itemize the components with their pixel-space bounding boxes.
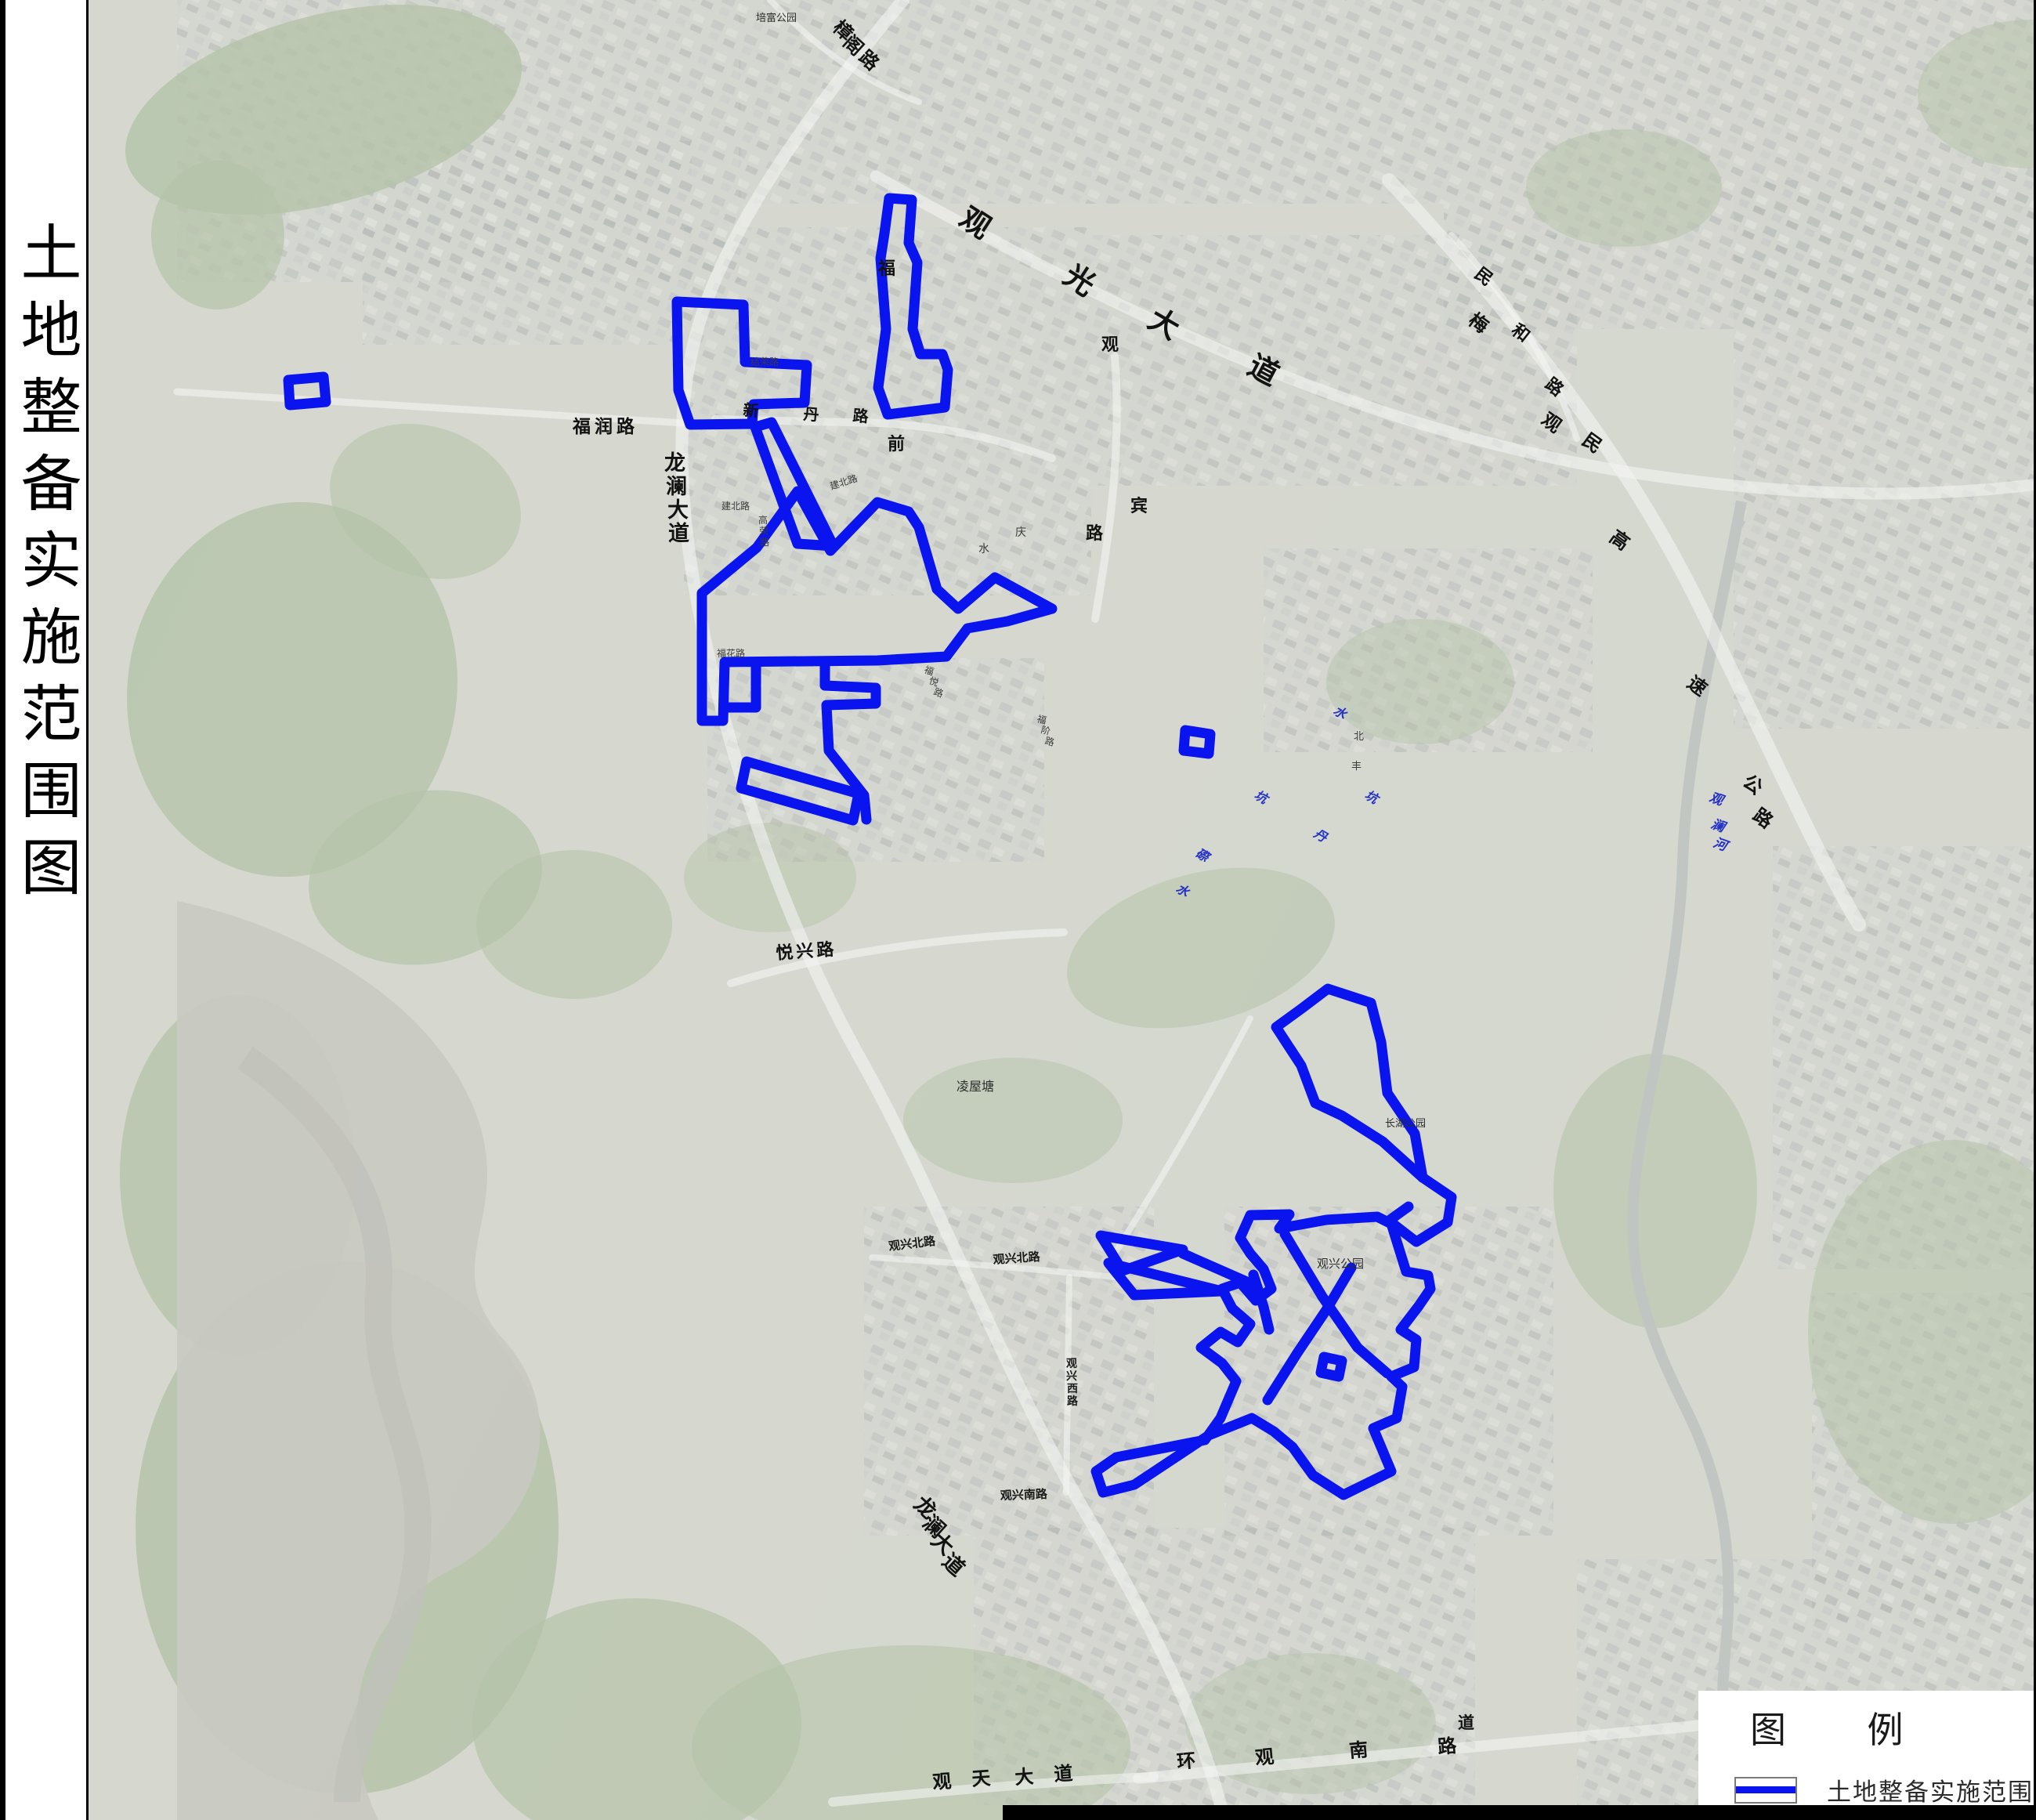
map-label-longlan-avenue-upper: 龙 <box>664 451 685 475</box>
map-label-jianbei-road-1: 建北路 <box>721 500 750 512</box>
map-label-longlan-avenue-upper: 道 <box>668 521 689 545</box>
map-label-guanxing-south-road: 观兴南路 <box>1000 1487 1049 1503</box>
map-label-guanxing-west-road: 路 <box>1067 1395 1079 1408</box>
map-label-gaorong-road: 路 <box>760 536 769 548</box>
map-label-guantian-avenue: 观 <box>932 1771 953 1793</box>
map-label-guantian-avenue: 大 <box>1014 1766 1035 1789</box>
map-label-peifu-park: 培富公园 <box>756 12 797 24</box>
map-label-bei-feng-chars: 北 <box>1354 730 1364 742</box>
map-label-changhu-park: 长湖公园 <box>1385 1117 1426 1129</box>
title-sidebar: 土地整备实施范围图 <box>5 0 89 1820</box>
map-label-xindan-road: 新 <box>743 400 760 421</box>
map-label-fuqian-road: 福 <box>877 259 895 278</box>
map-label-fuhua-road: 福花路 <box>717 647 745 659</box>
legend-panel: 图 例 土地整备实施范围 <box>1698 1691 2034 1805</box>
map-label-gaorong-road: 高 <box>758 514 768 526</box>
range-swatch-line <box>1736 1786 1796 1793</box>
legend-item: 土地整备实施范围 <box>1734 1772 2034 1807</box>
map-label-guantian-avenue: 道 <box>1053 1762 1073 1786</box>
map-label-huanguan-south-road: 环 <box>1176 1751 1196 1773</box>
map-label-xindan-road: 丹 <box>803 406 820 425</box>
map-label-fuqian-road: 前 <box>888 434 905 454</box>
map-label-guanbin-road: 观 <box>1101 335 1119 354</box>
range-swatch <box>1734 1777 1797 1804</box>
map-label-lingwutang-pond: 凌屋塘 <box>957 1080 994 1094</box>
map-label-dao-char-north-road: 道 <box>1458 1713 1474 1732</box>
map-label-guanxing-west-road: 观 <box>1066 1358 1077 1370</box>
legend-title: 图 例 <box>1750 1702 1940 1753</box>
map-label-qing-shui-village: 庆 <box>1015 526 1026 539</box>
map-label-guanbin-road: 路 <box>1086 523 1104 543</box>
map-label-furun-road: 福润路 <box>572 416 638 436</box>
map-label-gaorong-road: 荣 <box>759 526 768 537</box>
map-label-huanguan-south-road: 观 <box>1254 1747 1275 1769</box>
satellite-map: 观光大道樟阁路培富公园福润路龙澜大道新丹路福前观宾路民和路梅观民高速公路悦兴路凌… <box>89 0 2036 1820</box>
map-label-longlan-avenue-upper: 澜 <box>666 475 687 498</box>
map-label-huanguan-south-road: 路 <box>1437 1735 1458 1758</box>
legend-item-label: 土地整备实施范围 <box>1827 1772 2034 1807</box>
map-canvas: 观光大道樟阁路培富公园福润路龙澜大道新丹路福前观宾路民和路梅观民高速公路悦兴路凌… <box>89 0 2036 1820</box>
map-label-guantian-avenue: 天 <box>971 1768 992 1790</box>
map-label-jierong-road: 结荣路 <box>750 356 779 367</box>
map-label-qing-shui-village: 水 <box>978 543 989 555</box>
map-label-bei-feng-chars: 丰 <box>1351 760 1362 772</box>
map-label-huanguan-south-road: 南 <box>1348 1739 1369 1762</box>
map-label-guanxing-park: 观兴公园 <box>1317 1257 1364 1271</box>
map-label-guanbin-road: 宾 <box>1130 496 1148 516</box>
page-title: 土地整备实施范围图 <box>2 221 90 912</box>
map-label-xindan-road: 路 <box>852 406 870 426</box>
map-label-guanxing-west-road: 兴 <box>1066 1370 1077 1383</box>
map-label-longlan-avenue-upper: 大 <box>667 498 689 522</box>
map-label-guanxing-west-road: 西 <box>1067 1383 1078 1395</box>
